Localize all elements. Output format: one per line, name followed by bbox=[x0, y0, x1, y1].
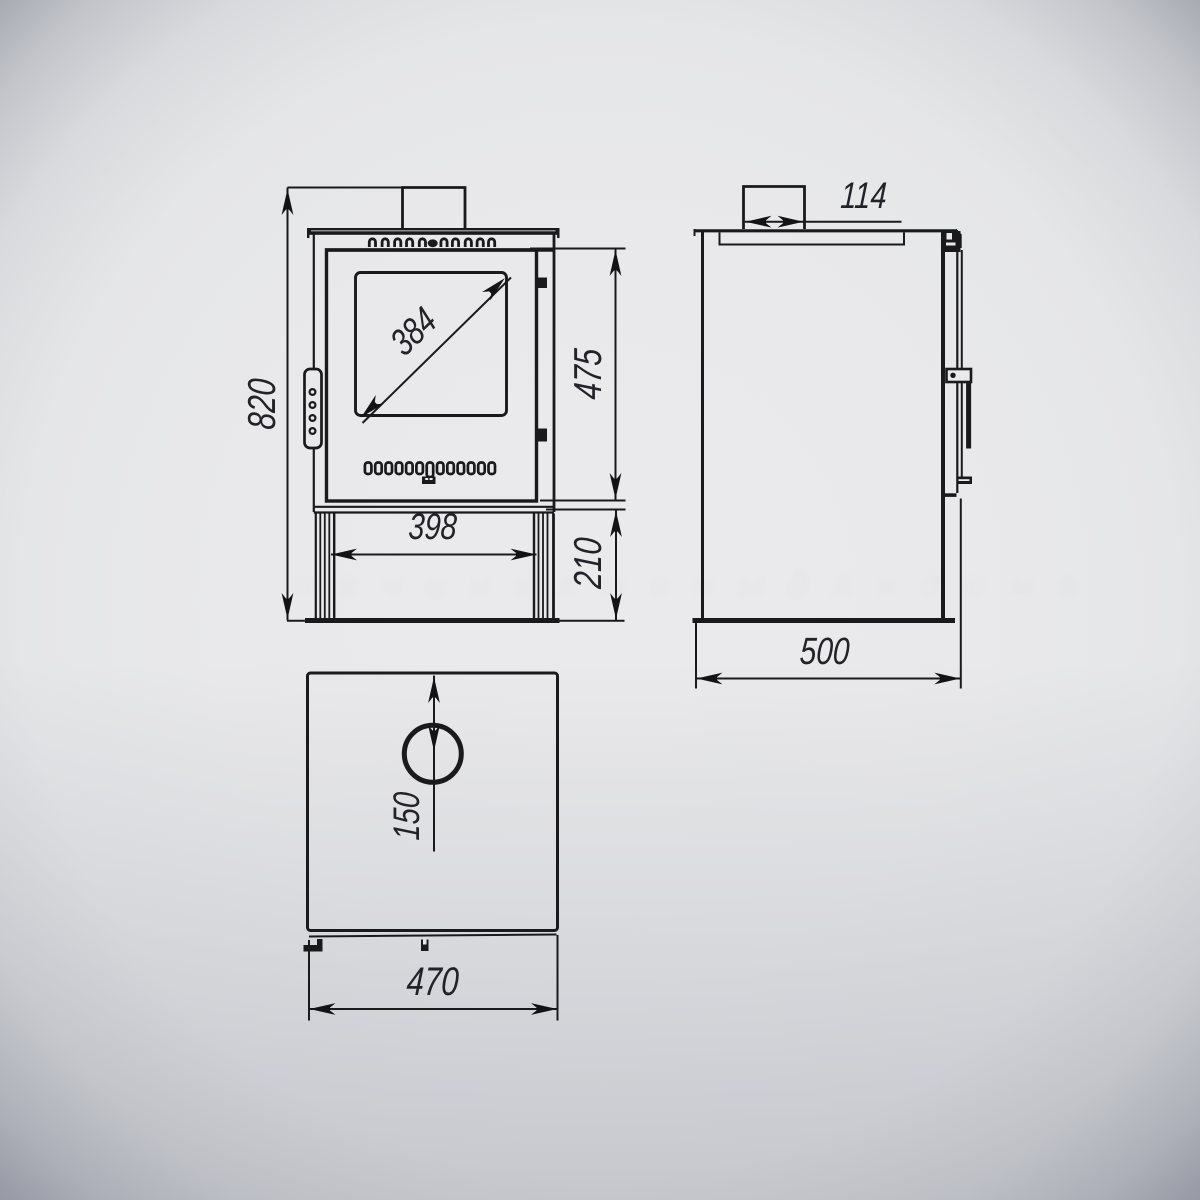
svg-text:398: 398 bbox=[407, 507, 458, 548]
svg-text:500: 500 bbox=[799, 631, 851, 673]
svg-text:150: 150 bbox=[387, 790, 428, 841]
svg-text:820: 820 bbox=[240, 377, 283, 431]
svg-text:384: 384 bbox=[383, 300, 445, 365]
svg-text:475: 475 bbox=[566, 347, 609, 401]
svg-text:470: 470 bbox=[405, 959, 460, 1004]
svg-text:210: 210 bbox=[566, 536, 609, 590]
svg-text:114: 114 bbox=[840, 176, 888, 217]
